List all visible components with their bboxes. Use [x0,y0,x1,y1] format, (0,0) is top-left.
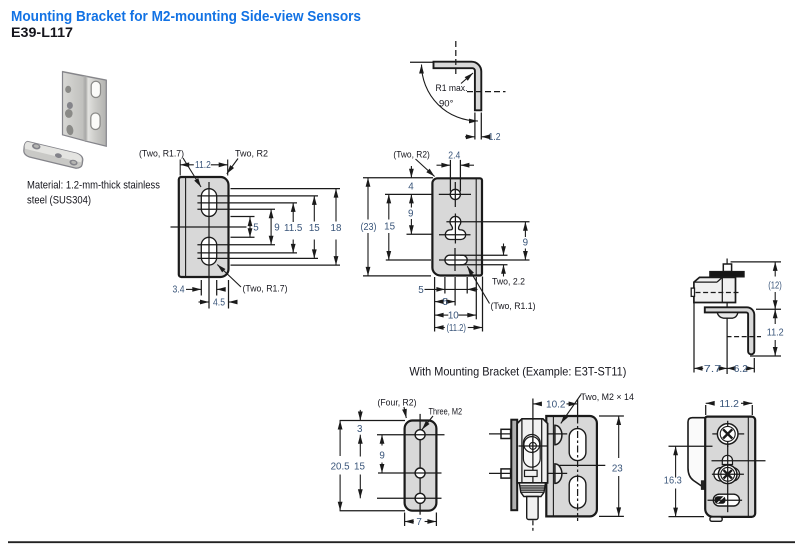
svg-text:11.2: 11.2 [195,160,211,171]
svg-text:9: 9 [523,237,528,248]
svg-text:20.5: 20.5 [331,462,351,473]
svg-text:9: 9 [408,209,413,220]
svg-text:Two, R2: Two, R2 [235,148,268,159]
svg-text:16.3: 16.3 [664,475,683,486]
svg-text:9: 9 [274,223,279,234]
svg-text:Material: 1.2-mm-thick stainle: Material: 1.2-mm-thick stainless [27,180,160,192]
svg-text:10.2: 10.2 [546,399,566,410]
svg-text:15: 15 [309,223,320,234]
svg-text:5: 5 [443,297,449,308]
svg-text:Three, M2: Three, M2 [429,407,463,418]
svg-text:(Two, R1.7): (Two, R1.7) [243,284,288,295]
svg-text:4.5: 4.5 [213,297,225,308]
svg-text:7: 7 [416,517,421,528]
svg-text:E39-L117: E39-L117 [11,25,73,40]
svg-text:2.4: 2.4 [448,150,460,161]
svg-text:4: 4 [408,181,414,192]
svg-text:5: 5 [418,285,424,296]
svg-text:11.2: 11.2 [719,399,739,410]
svg-text:(12): (12) [768,280,782,291]
svg-text:(Two, R1.1): (Two, R1.1) [491,301,536,312]
svg-text:(Two, R1.7): (Two, R1.7) [139,148,184,159]
svg-text:(11.2): (11.2) [446,323,466,334]
svg-text:18: 18 [331,223,342,234]
svg-text:steel (SUS304): steel (SUS304) [27,195,91,207]
svg-text:11.2: 11.2 [767,327,784,338]
svg-text:3: 3 [357,424,363,435]
svg-text:15: 15 [354,462,365,473]
svg-text:9: 9 [379,450,384,461]
svg-text:3.4: 3.4 [173,285,185,296]
svg-text:6.2: 6.2 [734,364,748,375]
svg-text:Mounting Bracket for M2-mounti: Mounting Bracket for M2-mounting Side-vi… [11,9,361,25]
svg-text:23: 23 [612,464,623,475]
svg-text:Two, M2 × 14: Two, M2 × 14 [581,392,634,403]
svg-text:10: 10 [448,311,459,322]
svg-text:(Four, R2): (Four, R2) [378,398,417,409]
svg-text:(23): (23) [361,222,377,233]
svg-text:7.7: 7.7 [704,364,722,375]
svg-text:1.2: 1.2 [489,132,501,143]
svg-text:Two, 2.2: Two, 2.2 [492,277,525,288]
svg-text:With Mounting Bracket (Example: With Mounting Bracket (Example: E3T-ST11… [409,365,626,379]
svg-text:(Two, R2): (Two, R2) [393,150,429,161]
svg-text:R1 max.: R1 max. [436,83,468,94]
svg-text:11.5: 11.5 [284,223,303,234]
svg-text:5: 5 [253,223,259,234]
svg-text:15: 15 [384,222,395,233]
